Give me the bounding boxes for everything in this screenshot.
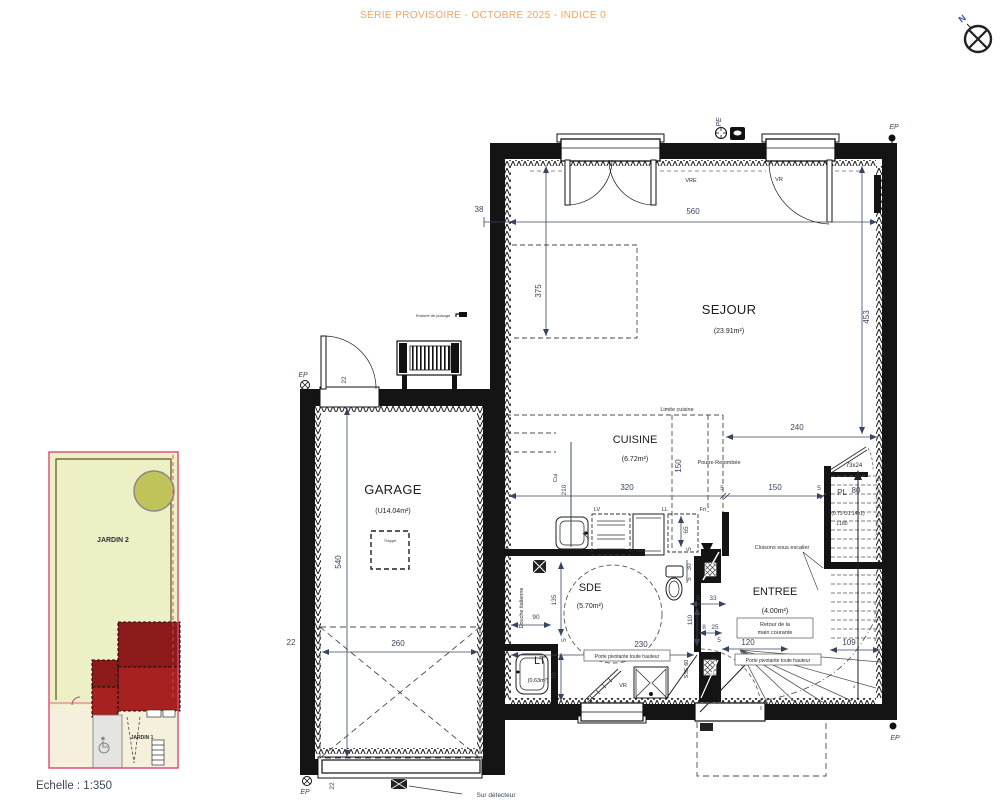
ep-marker-bottom-left: EP bbox=[300, 777, 311, 797]
svg-text:120: 120 bbox=[741, 638, 755, 647]
dishwasher bbox=[592, 514, 630, 555]
sejour-dashed-zone bbox=[512, 245, 637, 338]
lt-name: LT bbox=[534, 655, 546, 667]
svg-text:5: 5 bbox=[561, 638, 568, 642]
svg-text:22: 22 bbox=[329, 782, 336, 790]
cuisine-area: (6.72m²) bbox=[622, 456, 648, 463]
pe-marker: PE bbox=[716, 117, 746, 140]
duct-upper bbox=[701, 549, 721, 583]
plan-svg: SÉRIE PROVISOIRE - OCTOBRE 2025 - INDICE… bbox=[0, 0, 1000, 800]
svg-text:16: 16 bbox=[875, 477, 880, 482]
sde-name: SDE bbox=[579, 582, 602, 594]
page-title: SÉRIE PROVISOIRE - OCTOBRE 2025 - INDICE… bbox=[360, 8, 606, 21]
outdoor-tap-icon bbox=[456, 312, 467, 317]
heat-pump bbox=[397, 341, 461, 389]
svg-text:EP: EP bbox=[300, 789, 310, 796]
svg-text:135: 135 bbox=[551, 594, 558, 605]
lt-area: (0.63m²) bbox=[528, 678, 549, 684]
svg-text:540: 540 bbox=[334, 555, 343, 569]
svg-text:5: 5 bbox=[817, 485, 821, 492]
ep-marker-bottom-right: EP bbox=[890, 723, 900, 743]
svg-text:10: 10 bbox=[875, 531, 880, 536]
site-tree bbox=[134, 471, 174, 511]
sejour-area: (23.91m²) bbox=[714, 328, 744, 335]
entree-area: (4.00m²) bbox=[762, 608, 788, 615]
svg-text:30: 30 bbox=[686, 563, 693, 571]
ep-marker-garage: EP bbox=[298, 372, 309, 390]
limite-cuisine-label: Limite cuisine bbox=[660, 407, 693, 413]
svg-text:EP: EP bbox=[889, 124, 899, 131]
svg-text:PE: PE bbox=[716, 117, 723, 127]
jardin1-label: JARDIN 1 bbox=[131, 735, 154, 741]
sde-area: (5.70m²) bbox=[577, 603, 603, 610]
trappe-hatch bbox=[371, 531, 409, 569]
garage-area: (U14.04m²) bbox=[375, 508, 410, 515]
svg-text:240: 240 bbox=[790, 423, 804, 432]
svg-text:EP: EP bbox=[890, 735, 900, 742]
svg-text:65: 65 bbox=[683, 526, 690, 534]
sde-door-leaf bbox=[666, 655, 697, 699]
stair-door-label: (0.73 U1.14h1) bbox=[831, 511, 865, 517]
garage-door bbox=[318, 627, 482, 778]
cui-label: Cui bbox=[553, 474, 559, 482]
svg-text:14: 14 bbox=[875, 495, 880, 500]
svg-text:15: 15 bbox=[875, 486, 880, 491]
svg-text:25: 25 bbox=[711, 624, 719, 631]
retour-line1: Retour de la bbox=[760, 622, 791, 628]
ep-marker-top-right: EP bbox=[889, 124, 899, 143]
trappe-label: Trappe bbox=[384, 538, 397, 543]
svg-text:109: 109 bbox=[842, 638, 856, 647]
sse-label: SSE 60 bbox=[684, 660, 690, 679]
svg-text:70: 70 bbox=[551, 672, 558, 680]
porte-pivotante-entree: Porte pivotante toute hauteur bbox=[746, 658, 811, 664]
vr-bottom-label: VR bbox=[619, 683, 627, 689]
duct-lower bbox=[699, 652, 721, 702]
washbasin bbox=[634, 667, 668, 698]
porte-pivotante-sde: Porte pivotante toute hauteur bbox=[595, 654, 660, 660]
scale-label: Echelle : 1:350 bbox=[36, 780, 112, 792]
tap-label: Robinet de puisage bbox=[416, 313, 451, 318]
detector-light-icon bbox=[391, 779, 462, 794]
poutre-label: Poutre Retombée bbox=[697, 460, 740, 466]
annotations: VRE VR VR Limite cuisine Poutre Retombée… bbox=[384, 177, 865, 689]
floor-drain bbox=[533, 560, 546, 573]
svg-text:5: 5 bbox=[686, 547, 693, 551]
svg-text:12: 12 bbox=[875, 513, 880, 518]
svg-text:150: 150 bbox=[768, 483, 782, 492]
window-sejour-vr bbox=[762, 134, 839, 224]
svg-text:150: 150 bbox=[674, 459, 683, 473]
window-sejour-vre bbox=[557, 134, 664, 205]
svg-text:38: 38 bbox=[475, 205, 484, 214]
svg-text:453: 453 bbox=[862, 310, 871, 324]
svg-text:375: 375 bbox=[534, 284, 543, 298]
sejour-name: SEJOUR bbox=[702, 302, 757, 317]
toilet bbox=[666, 566, 683, 600]
floor-plan-page: SÉRIE PROVISOIRE - OCTOBRE 2025 - INDICE… bbox=[0, 0, 1000, 800]
entree-name: ENTREE bbox=[753, 586, 798, 598]
svg-text:5: 5 bbox=[686, 577, 693, 581]
compass-north-label: N bbox=[957, 13, 968, 25]
svg-text:230: 230 bbox=[634, 640, 648, 649]
svg-text:5: 5 bbox=[720, 485, 724, 492]
washing-machine bbox=[633, 514, 664, 555]
svg-text:90: 90 bbox=[532, 614, 540, 621]
site-driveway bbox=[93, 715, 122, 768]
retour-line2: main courante bbox=[758, 630, 793, 636]
ll-label: LL bbox=[662, 507, 668, 513]
vre-label: VRE bbox=[685, 178, 697, 184]
vr-label: VR bbox=[775, 177, 783, 183]
svg-text:33: 33 bbox=[709, 595, 717, 602]
fri-label: Fri bbox=[700, 507, 706, 513]
garage-name: GARAGE bbox=[364, 482, 421, 497]
svg-text:560: 560 bbox=[686, 207, 700, 216]
svg-text:110: 110 bbox=[687, 614, 694, 625]
svg-text:5: 5 bbox=[696, 595, 700, 602]
cuisine-name: CUISINE bbox=[613, 434, 658, 446]
cloisons-label: Cloisons sous escalier bbox=[755, 545, 810, 551]
svg-text:210: 210 bbox=[561, 484, 568, 495]
svg-text:4: 4 bbox=[853, 684, 856, 689]
svg-text:80: 80 bbox=[852, 486, 861, 495]
compass: N bbox=[957, 13, 991, 52]
svg-text:13: 13 bbox=[875, 504, 880, 509]
site-plan: JARDIN 2 JARDIN 1 Echelle : 1:350 bbox=[36, 452, 180, 792]
svg-text:8: 8 bbox=[702, 624, 706, 631]
svg-text:EP: EP bbox=[298, 372, 308, 379]
stair-dim-label: 73x24 bbox=[846, 463, 863, 469]
porch bbox=[697, 722, 826, 776]
pl-label: PL bbox=[837, 488, 847, 497]
svg-text:320: 320 bbox=[620, 483, 634, 492]
svg-text:22: 22 bbox=[287, 638, 296, 647]
svg-text:5: 5 bbox=[717, 637, 721, 644]
svg-text:22: 22 bbox=[341, 376, 348, 384]
jardin2-label: JARDIN 2 bbox=[97, 537, 129, 544]
svg-text:260: 260 bbox=[391, 639, 405, 648]
lv-label: LV bbox=[594, 507, 601, 513]
garage-side-door bbox=[320, 336, 379, 407]
dimension-lines bbox=[322, 166, 880, 757]
l180-label: L180 bbox=[836, 521, 847, 527]
detector-label: Sur détecteur bbox=[476, 792, 516, 799]
douche-label: Douche italienne bbox=[519, 588, 525, 629]
kitchen-sink bbox=[556, 517, 589, 549]
garage-walls bbox=[300, 389, 505, 775]
